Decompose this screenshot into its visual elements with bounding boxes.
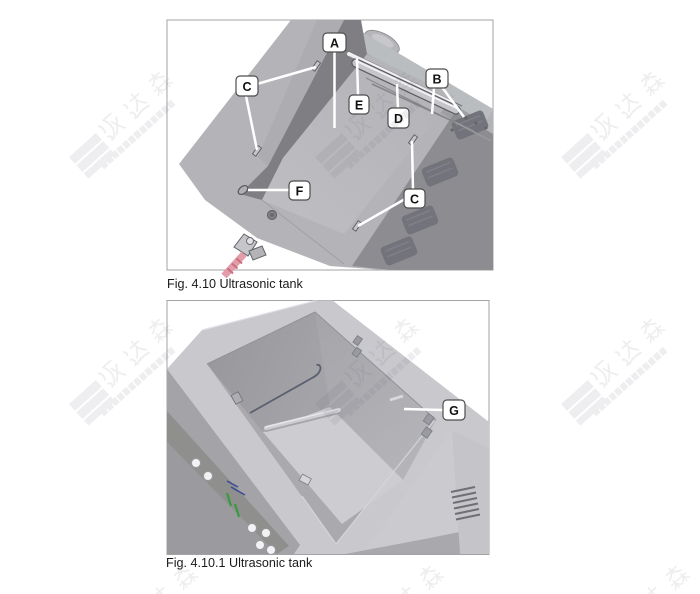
svg-text:Fig. 4.10 Ultrasonic tank: Fig. 4.10 Ultrasonic tank bbox=[167, 277, 303, 291]
svg-text:C: C bbox=[242, 80, 251, 94]
svg-text:B: B bbox=[432, 73, 441, 87]
svg-text:C: C bbox=[410, 193, 419, 207]
svg-text:Fig. 4.10.1 Ultrasonic tank: Fig. 4.10.1 Ultrasonic tank bbox=[166, 556, 313, 570]
svg-text:F: F bbox=[296, 185, 304, 199]
svg-text:G: G bbox=[449, 404, 459, 418]
svg-text:A: A bbox=[330, 37, 339, 51]
svg-text:E: E bbox=[355, 99, 363, 113]
